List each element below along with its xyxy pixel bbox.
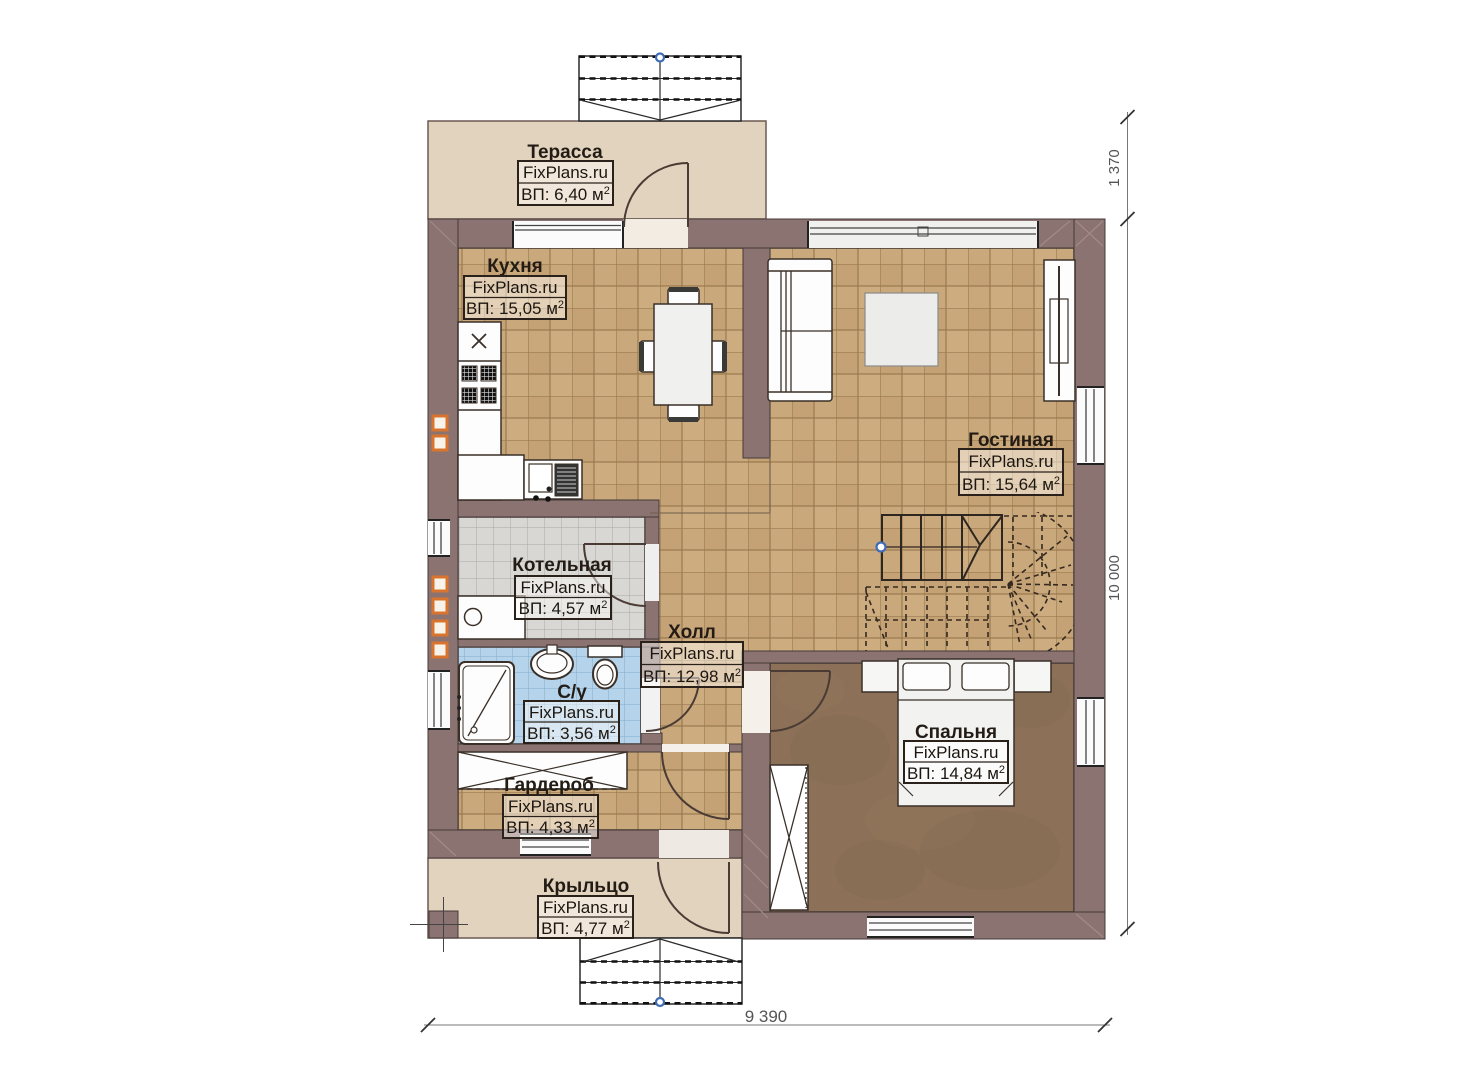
svg-text:ВП: 4,77 м2: ВП: 4,77 м2	[541, 919, 630, 938]
svg-text:Гардероб: Гардероб	[504, 775, 594, 796]
svg-text:FixPlans.ru: FixPlans.ru	[543, 898, 628, 917]
svg-text:ВП: 3,56 м2: ВП: 3,56 м2	[527, 724, 616, 743]
svg-text:9 390: 9 390	[745, 1007, 788, 1026]
svg-text:ВП: 15,05 м2: ВП: 15,05 м2	[466, 299, 564, 318]
svg-text:Крыльцо: Крыльцо	[543, 876, 629, 897]
svg-text:FixPlans.ru: FixPlans.ru	[523, 163, 608, 182]
svg-text:ВП: 14,84 м2: ВП: 14,84 м2	[907, 764, 1005, 783]
svg-text:1 370: 1 370	[1106, 149, 1123, 187]
svg-text:FixPlans.ru: FixPlans.ru	[520, 578, 605, 597]
svg-text:FixPlans.ru: FixPlans.ru	[529, 703, 614, 722]
svg-text:FixPlans.ru: FixPlans.ru	[649, 644, 734, 663]
svg-text:10 000: 10 000	[1106, 555, 1123, 601]
svg-text:Котельная: Котельная	[512, 555, 611, 576]
svg-text:ВП: 12,98 м2: ВП: 12,98 м2	[643, 667, 741, 686]
svg-text:Спальня: Спальня	[915, 722, 997, 743]
svg-text:ВП: 4,33 м2: ВП: 4,33 м2	[506, 818, 595, 837]
svg-text:С/у: С/у	[557, 682, 587, 703]
svg-text:ВП: 6,40 м2: ВП: 6,40 м2	[521, 185, 610, 204]
svg-text:ВП: 15,64 м2: ВП: 15,64 м2	[962, 475, 1060, 494]
svg-text:Кухня: Кухня	[487, 256, 543, 277]
svg-text:FixPlans.ru: FixPlans.ru	[508, 797, 593, 816]
svg-text:FixPlans.ru: FixPlans.ru	[472, 278, 557, 297]
svg-text:Гостиная: Гостиная	[968, 430, 1054, 451]
svg-text:ВП: 4,57 м2: ВП: 4,57 м2	[519, 599, 608, 618]
svg-text:FixPlans.ru: FixPlans.ru	[913, 743, 998, 762]
svg-text:Терасса: Терасса	[527, 142, 603, 163]
svg-text:FixPlans.ru: FixPlans.ru	[968, 452, 1053, 471]
svg-text:Холл: Холл	[668, 622, 716, 643]
